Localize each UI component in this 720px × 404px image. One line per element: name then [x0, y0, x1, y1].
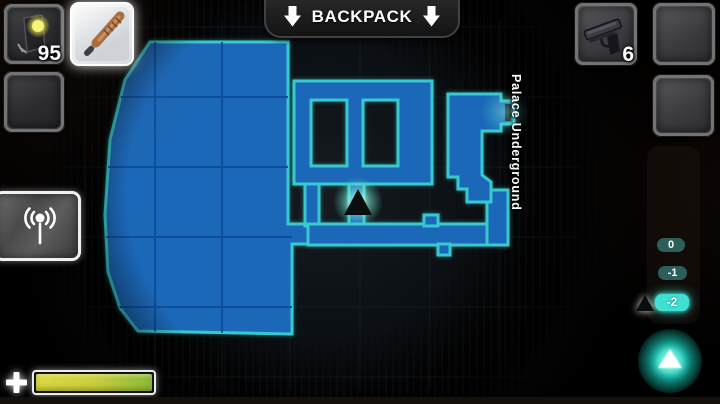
- map-rooms: [105, 42, 514, 334]
- cricket-bat-icon: [77, 9, 127, 59]
- item-count: 95: [38, 42, 61, 66]
- slot-empty-right-1[interactable]: [652, 2, 716, 66]
- floor-level-minus2-active[interactable]: -2: [655, 294, 689, 311]
- down-arrow-icon: [423, 2, 440, 27]
- slot-empty-left[interactable]: [3, 71, 65, 133]
- map-door-notch: [424, 215, 438, 226]
- floor-marker-triangle-icon: [635, 294, 655, 312]
- health-bar-fill: [36, 374, 152, 391]
- radio-button[interactable]: [0, 191, 81, 261]
- map-corridor-loop: [294, 81, 432, 184]
- slot-empty-right-2[interactable]: [652, 74, 715, 137]
- slot-pistol[interactable]: 6: [574, 2, 638, 66]
- slot-pane: [657, 79, 710, 132]
- map-large-hall: [105, 42, 308, 334]
- game-screen: Palace Underground 95: [0, 0, 720, 404]
- antenna-icon: [16, 204, 64, 248]
- slot-melee-bat[interactable]: [70, 2, 134, 66]
- slot-flashlight[interactable]: 95: [3, 3, 65, 65]
- slot-pane: [657, 7, 711, 61]
- floor-level-0[interactable]: 0: [657, 238, 685, 252]
- map-door-notch: [438, 244, 450, 255]
- backpack-banner[interactable]: BACKPACK: [264, 0, 460, 38]
- location-label: Palace Underground: [509, 74, 523, 211]
- ascend-button[interactable]: [638, 329, 702, 393]
- health-bar-track: [32, 370, 156, 395]
- map-corridor-bottom: [308, 224, 508, 245]
- bottom-edge-strip: [0, 397, 720, 404]
- map-corridor: [305, 184, 319, 226]
- plus-icon: [5, 371, 28, 394]
- item-count: 6: [622, 43, 634, 67]
- down-arrow-icon: [284, 2, 301, 27]
- slot-pane: [8, 76, 60, 128]
- up-triangle-icon: [658, 349, 682, 368]
- banner-label: BACKPACK: [312, 3, 413, 27]
- floor-level-minus1[interactable]: -1: [658, 266, 687, 280]
- health-bar: [4, 368, 156, 396]
